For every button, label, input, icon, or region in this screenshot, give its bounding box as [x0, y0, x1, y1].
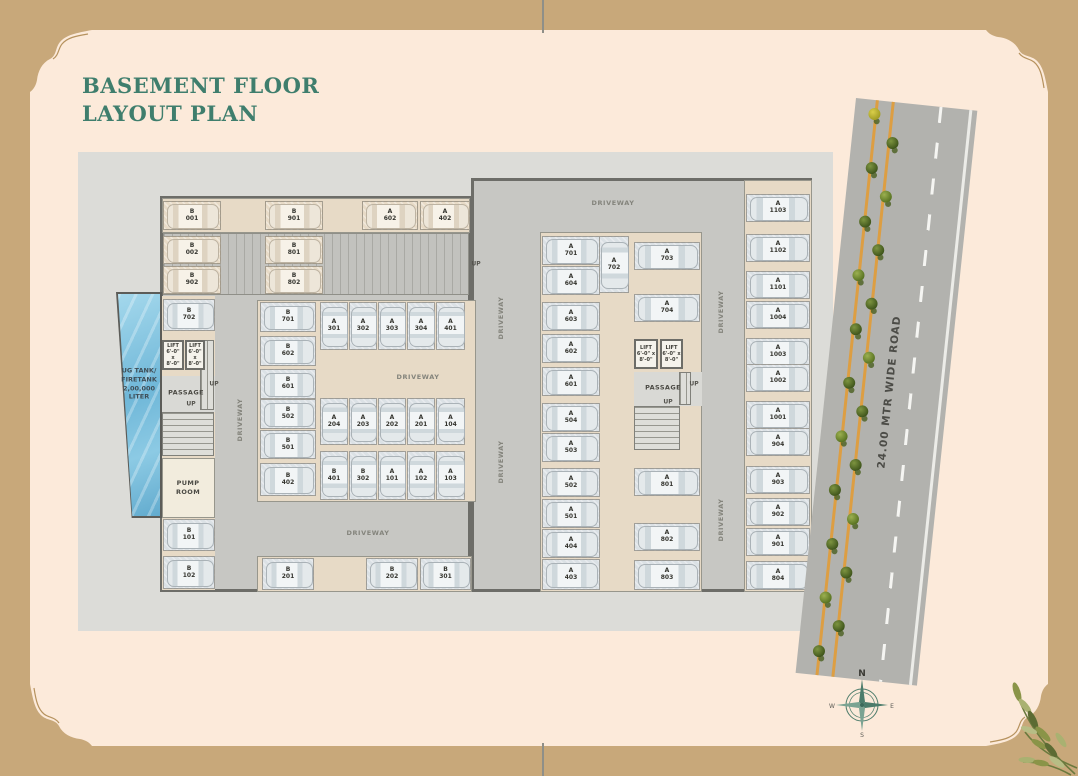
lift-room: LIFT 6'-0" x 8'-0" — [634, 339, 658, 369]
parking-space-label: A103 — [437, 452, 464, 499]
parking-space: A602 — [542, 334, 600, 363]
parking-space: B801 — [265, 236, 323, 264]
parking-space: A103 — [436, 451, 465, 500]
staircase-left-main — [162, 412, 214, 456]
parking-space: A802 — [634, 523, 700, 551]
parking-space-label: B701 — [261, 303, 315, 331]
parking-space: B202 — [366, 558, 418, 590]
parking-space: A501 — [542, 499, 600, 528]
parking-space-label: A802 — [635, 524, 699, 550]
parking-space-label: A1001 — [747, 402, 809, 428]
parking-space-label: A403 — [543, 560, 599, 589]
parking-space-label: A303 — [379, 303, 405, 349]
parking-space: B702 — [163, 299, 215, 331]
tree-icon — [872, 244, 885, 257]
parking-space-label: A601 — [543, 368, 599, 395]
parking-space-label: A201 — [408, 399, 434, 444]
parking-space: A803 — [634, 560, 700, 590]
title-line-1: BASEMENT FLOOR — [82, 72, 319, 100]
parking-space-label: A604 — [543, 267, 599, 294]
up-label: UP — [663, 399, 672, 406]
parking-space: A901 — [746, 528, 810, 556]
parking-space: A404 — [542, 529, 600, 558]
parking-space-label: A104 — [437, 399, 464, 444]
driveway-label: DRIVEWAY — [717, 498, 725, 541]
parking-space: B302 — [349, 451, 377, 500]
tree-icon — [868, 107, 881, 120]
driveway-label: DRIVEWAY — [396, 373, 439, 381]
tree-icon — [865, 297, 878, 310]
parking-space: A1003 — [746, 338, 810, 366]
parking-space-label: B602 — [261, 337, 315, 365]
up-label: UP — [471, 261, 480, 268]
parking-space-label: A301 — [321, 303, 347, 349]
parking-space-label: B901 — [266, 202, 322, 229]
parking-space: A1002 — [746, 364, 810, 392]
tree-icon — [826, 537, 839, 550]
parking-space-label: B201 — [263, 559, 313, 589]
parking-space-label: A903 — [747, 467, 809, 493]
parking-space: A904 — [746, 428, 810, 456]
parking-space-label: A602 — [543, 335, 599, 362]
parking-space-label: B902 — [164, 267, 220, 293]
parking-space-label: A202 — [379, 399, 405, 444]
tree-icon — [886, 136, 899, 149]
tree-icon — [849, 458, 862, 471]
parking-space: A601 — [542, 367, 600, 396]
parking-space-label: A404 — [543, 530, 599, 557]
parking-space: A602 — [362, 201, 418, 230]
svg-text:N: N — [858, 669, 866, 679]
tree-icon — [863, 351, 876, 364]
parking-space: B901 — [265, 201, 323, 230]
parking-space: B101 — [163, 519, 215, 551]
parking-space: A1004 — [746, 301, 810, 329]
parking-space: A703 — [634, 242, 700, 270]
parking-space: B201 — [262, 558, 314, 590]
parking-space-label: B102 — [164, 557, 214, 588]
parking-space: A801 — [634, 468, 700, 496]
parking-space-label: A702 — [600, 237, 628, 292]
parking-space-label: A401 — [437, 303, 464, 349]
parking-space-label: A1103 — [747, 195, 809, 221]
parking-space-label: B702 — [164, 300, 214, 330]
passage-label: PASSAGE — [645, 383, 681, 392]
tree-icon — [828, 483, 841, 496]
parking-space-label: B301 — [421, 559, 470, 589]
pump-room-label: PUMP ROOM — [176, 479, 200, 497]
parking-space-label: A803 — [635, 561, 699, 589]
parking-space-label: A502 — [543, 469, 599, 496]
parking-space-label: A703 — [635, 243, 699, 269]
parking-space: B402 — [260, 463, 316, 496]
parking-space-label: B202 — [367, 559, 417, 589]
up-label: UP — [186, 401, 195, 408]
driveway-label: DRIVEWAY — [236, 398, 244, 441]
parking-space-label: A1101 — [747, 272, 809, 298]
fold-mark-top — [542, 0, 544, 33]
parking-space-label: A701 — [543, 237, 599, 264]
parking-space-label: A1004 — [747, 302, 809, 328]
tree-icon — [866, 161, 879, 174]
parking-space: A701 — [542, 236, 600, 265]
parking-space-label: A902 — [747, 499, 809, 525]
parking-space-label: A1003 — [747, 339, 809, 365]
parking-space: A204 — [320, 398, 348, 445]
parking-space-label: B101 — [164, 520, 214, 550]
parking-space: A902 — [746, 498, 810, 526]
parking-space: A202 — [378, 398, 406, 445]
tree-icon — [859, 215, 872, 228]
parking-space-label: A402 — [421, 202, 469, 229]
parking-space-label: A1102 — [747, 235, 809, 261]
parking-space-label: B802 — [266, 267, 322, 293]
tree-icon — [879, 190, 892, 203]
tree-icon — [832, 620, 845, 633]
up-label: UP — [209, 381, 218, 388]
parking-space-label: A503 — [543, 434, 599, 461]
parking-space: A1102 — [746, 234, 810, 262]
parking-space: A604 — [542, 266, 600, 295]
parking-space-label: B501 — [261, 431, 315, 458]
tree-icon — [819, 591, 832, 604]
parking-space-label: A101 — [379, 452, 405, 499]
driveway-label: DRIVEWAY — [497, 440, 505, 483]
parking-space-label: A801 — [635, 469, 699, 495]
title-line-2: LAYOUT PLAN — [82, 100, 319, 128]
parking-space: B602 — [260, 336, 316, 366]
parking-space: A903 — [746, 466, 810, 494]
parking-space-label: A804 — [747, 562, 809, 589]
parking-space-label: B402 — [261, 464, 315, 495]
compass-rose-icon: N E S W — [828, 668, 896, 738]
parking-space-label: A102 — [408, 452, 434, 499]
parking-space-label: A504 — [543, 404, 599, 431]
parking-space-label: A501 — [543, 500, 599, 527]
tree-icon — [842, 376, 855, 389]
parking-space: B502 — [260, 399, 316, 429]
parking-space-label: B302 — [350, 452, 376, 499]
parking-space: B902 — [163, 266, 221, 294]
parking-space: A804 — [746, 561, 810, 590]
corner-ornament-top-right — [986, 30, 1048, 92]
tree-icon — [851, 269, 864, 282]
parking-space: B601 — [260, 369, 316, 399]
parking-space-label: B601 — [261, 370, 315, 398]
parking-space-label: B801 — [266, 237, 322, 263]
parking-space-label: A302 — [350, 303, 376, 349]
page-title: BASEMENT FLOOR LAYOUT PLAN — [82, 72, 319, 129]
up-label: UP — [689, 381, 698, 388]
driveway-label: DRIVEWAY — [497, 296, 505, 339]
tree-icon — [846, 512, 859, 525]
driveway-label: DRIVEWAY — [591, 199, 634, 207]
lift-room: LIFT 6'-0" x 8'-0" — [162, 340, 184, 370]
parking-space-label: A901 — [747, 529, 809, 555]
parking-space-label: B001 — [164, 202, 220, 229]
parking-space: A201 — [407, 398, 435, 445]
parking-space: A101 — [378, 451, 406, 500]
parking-space-label: A304 — [408, 303, 434, 349]
parking-space-label: A704 — [635, 295, 699, 321]
tree-icon — [812, 645, 825, 658]
parking-space: A1101 — [746, 271, 810, 299]
parking-space-label: A204 — [321, 399, 347, 444]
parking-space-label: A203 — [350, 399, 376, 444]
svg-text:W: W — [829, 703, 835, 710]
parking-space-label: A602 — [363, 202, 417, 229]
tree-icon — [835, 430, 848, 443]
parking-space: A1001 — [746, 401, 810, 429]
parking-space-label: B502 — [261, 400, 315, 428]
svg-text:S: S — [860, 732, 864, 738]
parking-space: A403 — [542, 559, 600, 590]
parking-space: B401 — [320, 451, 348, 500]
page: { "title": {"line1": "BASEMENT FLOOR", "… — [0, 0, 1078, 776]
parking-space-label: B002 — [164, 237, 220, 263]
parking-space: A302 — [349, 302, 377, 350]
tree-icon — [839, 566, 852, 579]
parking-space: A203 — [349, 398, 377, 445]
tree-icon — [856, 405, 869, 418]
parking-space: B501 — [260, 430, 316, 459]
lift-room: LIFT 6'-0" x 8'-0" — [660, 339, 683, 369]
parking-space: B102 — [163, 556, 215, 589]
parking-space: A304 — [407, 302, 435, 350]
ug-tank-label: UG TANK/ FIRETANK 2,00,000 LITER — [121, 366, 157, 401]
parking-space: A303 — [378, 302, 406, 350]
parking-space: A502 — [542, 468, 600, 497]
parking-space: A402 — [420, 201, 470, 230]
parking-space: A704 — [634, 294, 700, 322]
parking-space: A301 — [320, 302, 348, 350]
parking-space: B802 — [265, 266, 323, 294]
parking-space: A702 — [599, 236, 629, 293]
parking-space-label: A1002 — [747, 365, 809, 391]
parking-space: B701 — [260, 302, 316, 332]
road-width-label: 24.00 MTR WIDE ROAD — [875, 315, 903, 469]
parking-space: A102 — [407, 451, 435, 500]
driveway-label: DRIVEWAY — [346, 529, 389, 537]
parking-space-label: A904 — [747, 429, 809, 455]
parking-space: B002 — [163, 236, 221, 264]
svg-text:E: E — [890, 703, 894, 710]
lift-room: LIFT 6'-0" x 8'-0" — [185, 340, 205, 370]
driveway-label: DRIVEWAY — [717, 290, 725, 333]
parking-space: A503 — [542, 433, 600, 462]
plant-decoration — [925, 670, 1078, 776]
parking-space: B001 — [163, 201, 221, 230]
parking-space: A401 — [436, 302, 465, 350]
parking-space-label: A603 — [543, 303, 599, 330]
fold-mark-bottom — [542, 743, 544, 776]
parking-space: A1103 — [746, 194, 810, 222]
passage-label: PASSAGE — [168, 388, 204, 397]
parking-space-label: B401 — [321, 452, 347, 499]
parking-space: A504 — [542, 403, 600, 432]
parking-space: A104 — [436, 398, 465, 445]
staircase-right-main — [634, 406, 680, 450]
parking-space: A603 — [542, 302, 600, 331]
corner-ornament-bottom-left — [30, 684, 92, 746]
tree-icon — [849, 323, 862, 336]
parking-space: B301 — [420, 558, 471, 590]
